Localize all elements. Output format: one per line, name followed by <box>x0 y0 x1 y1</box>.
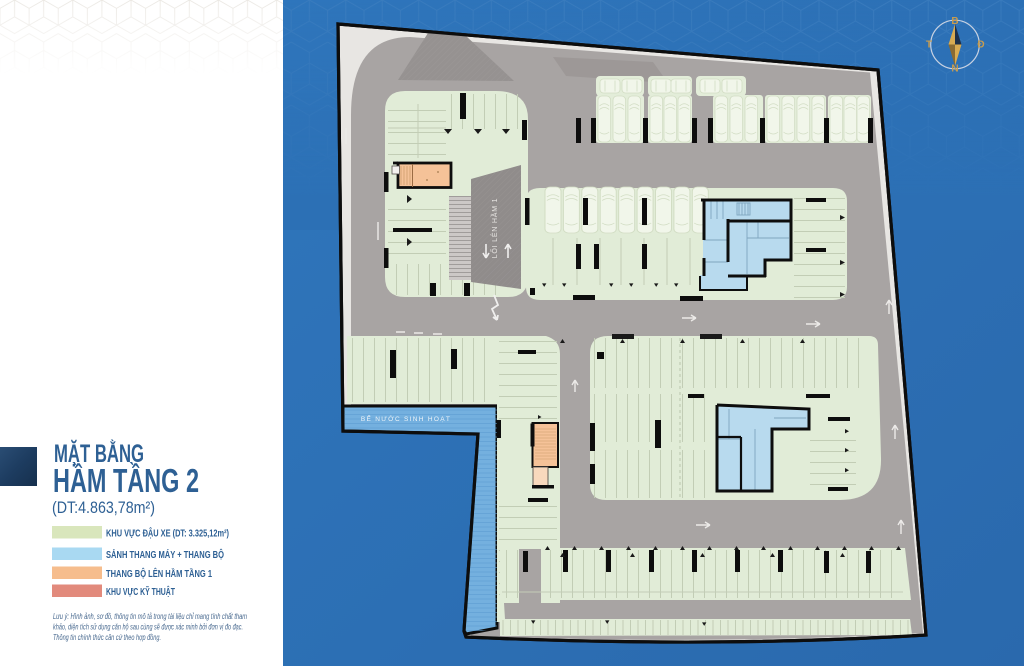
svg-text:Lưu ý: Hình ảnh, sơ đồ, thông: Lưu ý: Hình ảnh, sơ đồ, thông tin mô tả … <box>53 612 247 621</box>
svg-text:SẢNH THANG MÁY + THANG BỘ: SẢNH THANG MÁY + THANG BỘ <box>106 548 224 561</box>
svg-text:Thông tin chính thức căn cứ th: Thông tin chính thức căn cứ theo hợp đồn… <box>53 633 161 642</box>
svg-text:HẦM TẦNG 2: HẦM TẦNG 2 <box>53 462 199 499</box>
svg-text:KHU VỰC KỸ THUẬT: KHU VỰC KỸ THUẬT <box>106 585 175 598</box>
svg-text:B: B <box>951 16 958 27</box>
svg-text:THANG BỘ LÊN HẦM TẦNG 1: THANG BỘ LÊN HẦM TẦNG 1 <box>106 567 212 580</box>
svg-text:T: T <box>926 40 932 51</box>
svg-text:Đ: Đ <box>977 40 984 51</box>
svg-text:BỂ NƯỚC SINH HOẠT: BỂ NƯỚC SINH HOẠT <box>361 414 451 423</box>
svg-text:khảo, diện tích sử dụng căn hộ: khảo, diện tích sử dụng căn hộ sau cùng … <box>53 623 243 632</box>
svg-text:KHU VỰC ĐẬU XE (DT: 3.325,12m²: KHU VỰC ĐẬU XE (DT: 3.325,12m²) <box>106 527 229 540</box>
svg-text:N: N <box>951 64 958 75</box>
svg-text:(DT:4.863,78m²): (DT:4.863,78m²) <box>52 498 155 517</box>
